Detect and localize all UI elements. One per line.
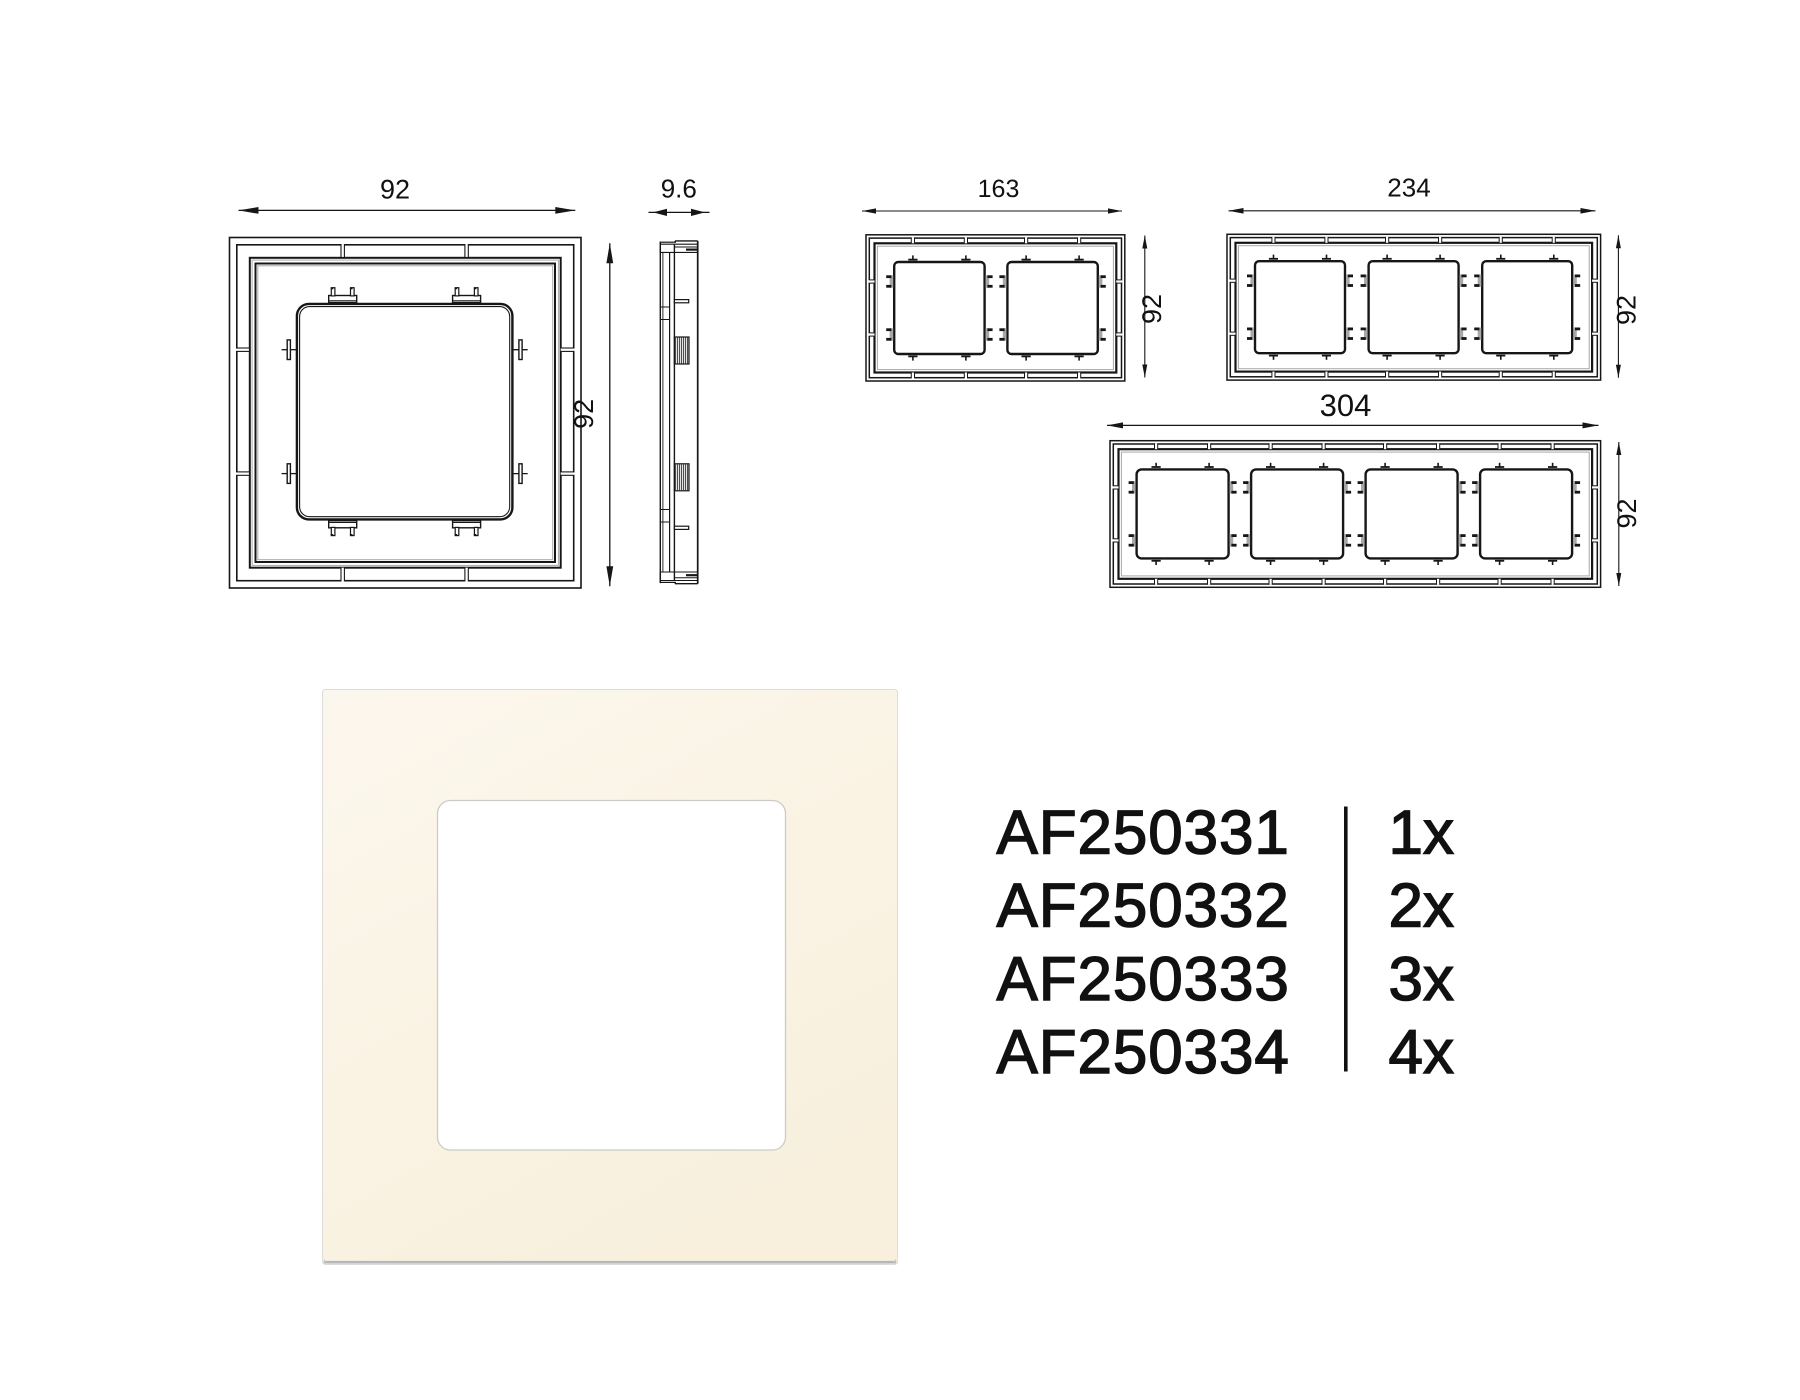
svg-text:1x: 1x (1389, 798, 1454, 867)
svg-text:304: 304 (1320, 388, 1372, 423)
svg-text:3x: 3x (1389, 945, 1454, 1014)
svg-text:92: 92 (1137, 294, 1167, 324)
svg-text:92: 92 (569, 399, 599, 429)
svg-text:AF250331: AF250331 (997, 798, 1290, 867)
svg-text:AF250332: AF250332 (997, 872, 1290, 941)
svg-text:AF250333: AF250333 (997, 945, 1290, 1014)
svg-text:AF250334: AF250334 (997, 1018, 1290, 1087)
svg-text:163: 163 (978, 175, 1020, 203)
svg-text:92: 92 (1611, 295, 1641, 325)
svg-text:4x: 4x (1389, 1018, 1454, 1087)
svg-text:2x: 2x (1389, 872, 1454, 941)
svg-text:9.6: 9.6 (661, 174, 697, 204)
svg-text:234: 234 (1387, 172, 1430, 202)
svg-text:92: 92 (380, 175, 410, 205)
svg-text:92: 92 (1612, 498, 1642, 528)
